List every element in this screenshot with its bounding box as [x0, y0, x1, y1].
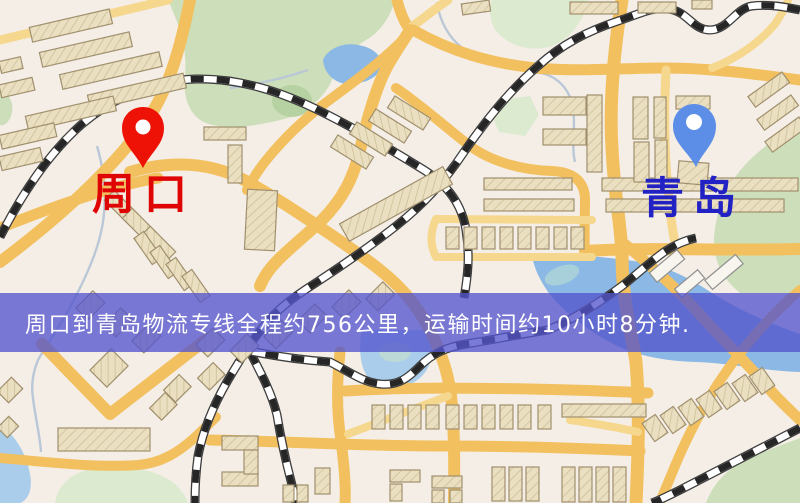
map-screenshot: 周口 青岛 周口到青岛物流专线全程约756公里，运输时间约10小时8分钟. [0, 0, 800, 503]
destination-place-label: 青岛 [641, 178, 745, 221]
origin-place-label: 周口 [92, 174, 196, 217]
map-canvas[interactable] [0, 0, 800, 503]
route-info-banner: 周口到青岛物流专线全程约756公里，运输时间约10小时8分钟. [0, 293, 800, 352]
route-info-text: 周口到青岛物流专线全程约756公里，运输时间约10小时8分钟. [0, 307, 690, 339]
